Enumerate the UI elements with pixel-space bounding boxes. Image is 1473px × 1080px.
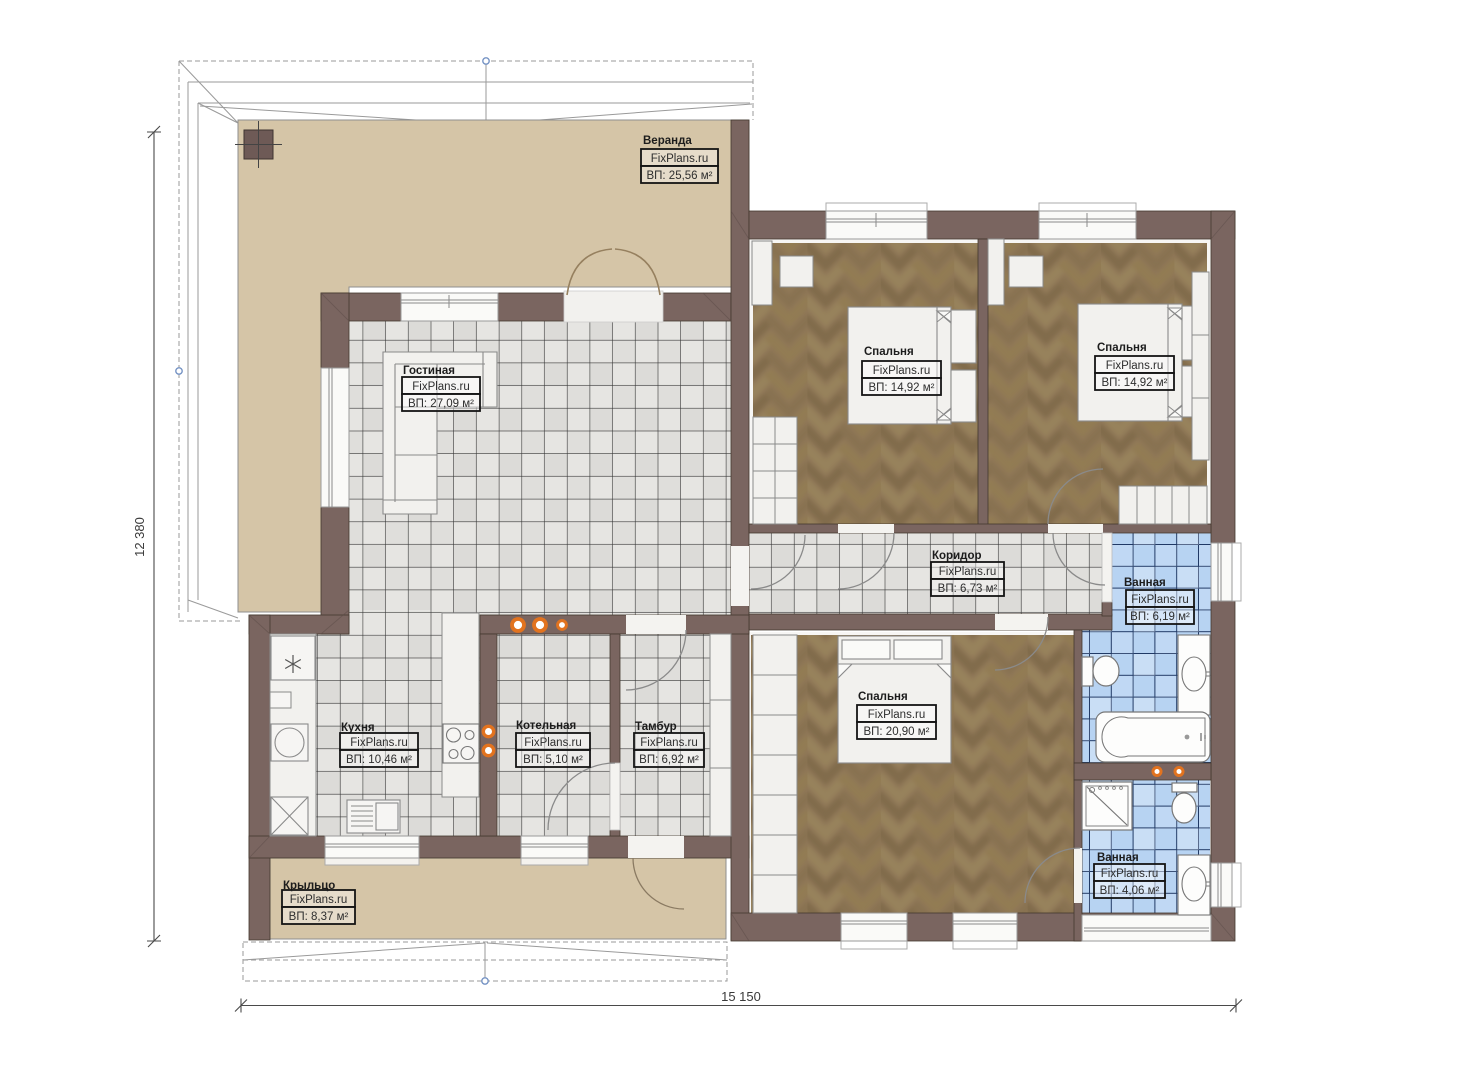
svg-text:FixPlans.ru: FixPlans.ru [524, 737, 582, 749]
svg-text:Ванная: Ванная [1124, 577, 1166, 589]
svg-text:FixPlans.ru: FixPlans.ru [1106, 360, 1164, 372]
svg-text:15 150: 15 150 [721, 989, 761, 1004]
svg-text:Ванная: Ванная [1097, 852, 1139, 864]
svg-text:FixPlans.ru: FixPlans.ru [1101, 868, 1159, 880]
svg-text:Спальня: Спальня [1097, 342, 1147, 354]
svg-text:ВП: 4,06 м²: ВП: 4,06 м² [1100, 885, 1160, 897]
svg-text:FixPlans.ru: FixPlans.ru [873, 365, 931, 377]
svg-text:Спальня: Спальня [864, 346, 914, 358]
svg-text:ВП: 14,92 м²: ВП: 14,92 м² [868, 382, 934, 394]
svg-text:12 380: 12 380 [132, 517, 147, 557]
svg-text:Коридор: Коридор [932, 550, 982, 562]
svg-text:ВП: 14,92 м²: ВП: 14,92 м² [1101, 377, 1167, 389]
svg-text:FixPlans.ru: FixPlans.ru [640, 737, 698, 749]
svg-text:Тамбур: Тамбур [635, 721, 677, 733]
svg-text:ВП: 6,92 м²: ВП: 6,92 м² [639, 754, 699, 766]
svg-text:ВП: 10,46 м²: ВП: 10,46 м² [346, 754, 412, 766]
svg-text:ВП: 6,73 м²: ВП: 6,73 м² [938, 583, 998, 595]
svg-text:FixPlans.ru: FixPlans.ru [1131, 594, 1189, 606]
svg-text:FixPlans.ru: FixPlans.ru [939, 566, 997, 578]
svg-text:Котельная: Котельная [516, 720, 576, 732]
svg-text:FixPlans.ru: FixPlans.ru [290, 894, 348, 906]
svg-text:ВП: 5,10 м²: ВП: 5,10 м² [523, 754, 583, 766]
svg-text:FixPlans.ru: FixPlans.ru [350, 737, 408, 749]
svg-text:FixPlans.ru: FixPlans.ru [868, 709, 926, 721]
svg-text:ВП: 27,09 м²: ВП: 27,09 м² [408, 398, 474, 410]
svg-text:ВП: 20,90 м²: ВП: 20,90 м² [863, 726, 929, 738]
svg-text:Гостиная: Гостиная [403, 365, 455, 377]
svg-text:ВП: 6,19 м²: ВП: 6,19 м² [1130, 611, 1190, 623]
svg-text:FixPlans.ru: FixPlans.ru [412, 381, 470, 393]
svg-text:Спальня: Спальня [858, 691, 908, 703]
svg-text:Веранда: Веранда [643, 135, 692, 147]
svg-text:ВП: 25,56 м²: ВП: 25,56 м² [646, 170, 712, 182]
svg-text:ВП: 8,37 м²: ВП: 8,37 м² [289, 911, 349, 923]
svg-text:FixPlans.ru: FixPlans.ru [651, 153, 709, 165]
